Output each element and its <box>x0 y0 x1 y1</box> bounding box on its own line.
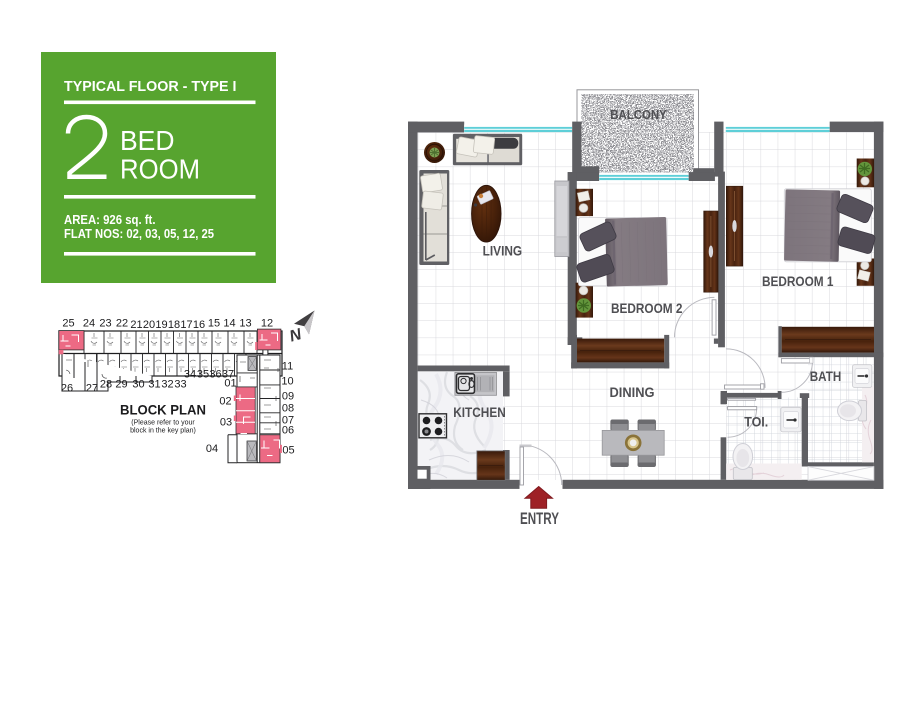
svg-text:TYPICAL FLOOR - TYPE I: TYPICAL FLOOR - TYPE I <box>64 79 237 95</box>
svg-text:14: 14 <box>223 318 235 330</box>
svg-text:22: 22 <box>116 318 128 330</box>
svg-text:15: 15 <box>208 318 220 330</box>
svg-text:AREA: 926 sq. ft.: AREA: 926 sq. ft. <box>64 213 156 227</box>
svg-text:26: 26 <box>61 383 73 395</box>
svg-text:33: 33 <box>174 379 186 391</box>
svg-text:10: 10 <box>281 376 293 388</box>
svg-text:20: 20 <box>143 319 155 331</box>
svg-text:16: 16 <box>193 319 205 331</box>
svg-text:30: 30 <box>132 379 144 391</box>
svg-text:13: 13 <box>239 318 251 330</box>
svg-text:03: 03 <box>220 417 232 429</box>
svg-text:BATH: BATH <box>810 368 842 384</box>
svg-text:27: 27 <box>86 383 98 395</box>
svg-text:32: 32 <box>161 379 173 391</box>
svg-text:BLOCK PLAN: BLOCK PLAN <box>120 402 206 418</box>
svg-text:09: 09 <box>282 391 294 403</box>
svg-text:25: 25 <box>62 318 74 330</box>
svg-text:35: 35 <box>197 369 209 381</box>
svg-text:block in the key plan): block in the key plan) <box>130 428 196 435</box>
svg-text:29: 29 <box>115 379 127 391</box>
svg-text:08: 08 <box>282 403 294 415</box>
svg-text:BALCONY: BALCONY <box>610 107 667 122</box>
svg-text:KITCHEN: KITCHEN <box>453 404 506 420</box>
svg-text:12: 12 <box>261 318 273 330</box>
svg-text:19: 19 <box>155 319 167 331</box>
svg-text:BEDROOM 1: BEDROOM 1 <box>762 273 834 289</box>
svg-text:N: N <box>288 326 304 346</box>
svg-text:TOI.: TOI. <box>744 414 768 430</box>
svg-text:FLAT NOS: 02, 03, 05, 12, 25: FLAT NOS: 02, 03, 05, 12, 25 <box>64 227 214 241</box>
svg-text:01: 01 <box>224 378 236 390</box>
svg-text:04: 04 <box>206 443 218 455</box>
svg-text:(Please refer to your: (Please refer to your <box>131 420 195 427</box>
svg-text:BEDROOM 2: BEDROOM 2 <box>611 300 683 316</box>
svg-text:18: 18 <box>168 319 180 331</box>
svg-text:06: 06 <box>282 425 294 437</box>
svg-text:23: 23 <box>99 318 111 330</box>
svg-text:24: 24 <box>83 318 95 330</box>
svg-text:21: 21 <box>130 319 142 331</box>
svg-text:17: 17 <box>180 319 192 331</box>
svg-text:BED: BED <box>120 125 175 156</box>
svg-text:LIVING: LIVING <box>483 242 523 258</box>
svg-text:02: 02 <box>219 396 231 408</box>
svg-text:ENTRY: ENTRY <box>520 509 559 528</box>
svg-text:36: 36 <box>209 369 221 381</box>
svg-text:DINING: DINING <box>610 384 655 400</box>
svg-text:05: 05 <box>282 445 294 457</box>
svg-text:28: 28 <box>100 379 112 391</box>
svg-text:31: 31 <box>148 379 160 391</box>
svg-text:ROOM: ROOM <box>120 154 200 185</box>
svg-text:11: 11 <box>282 361 293 373</box>
